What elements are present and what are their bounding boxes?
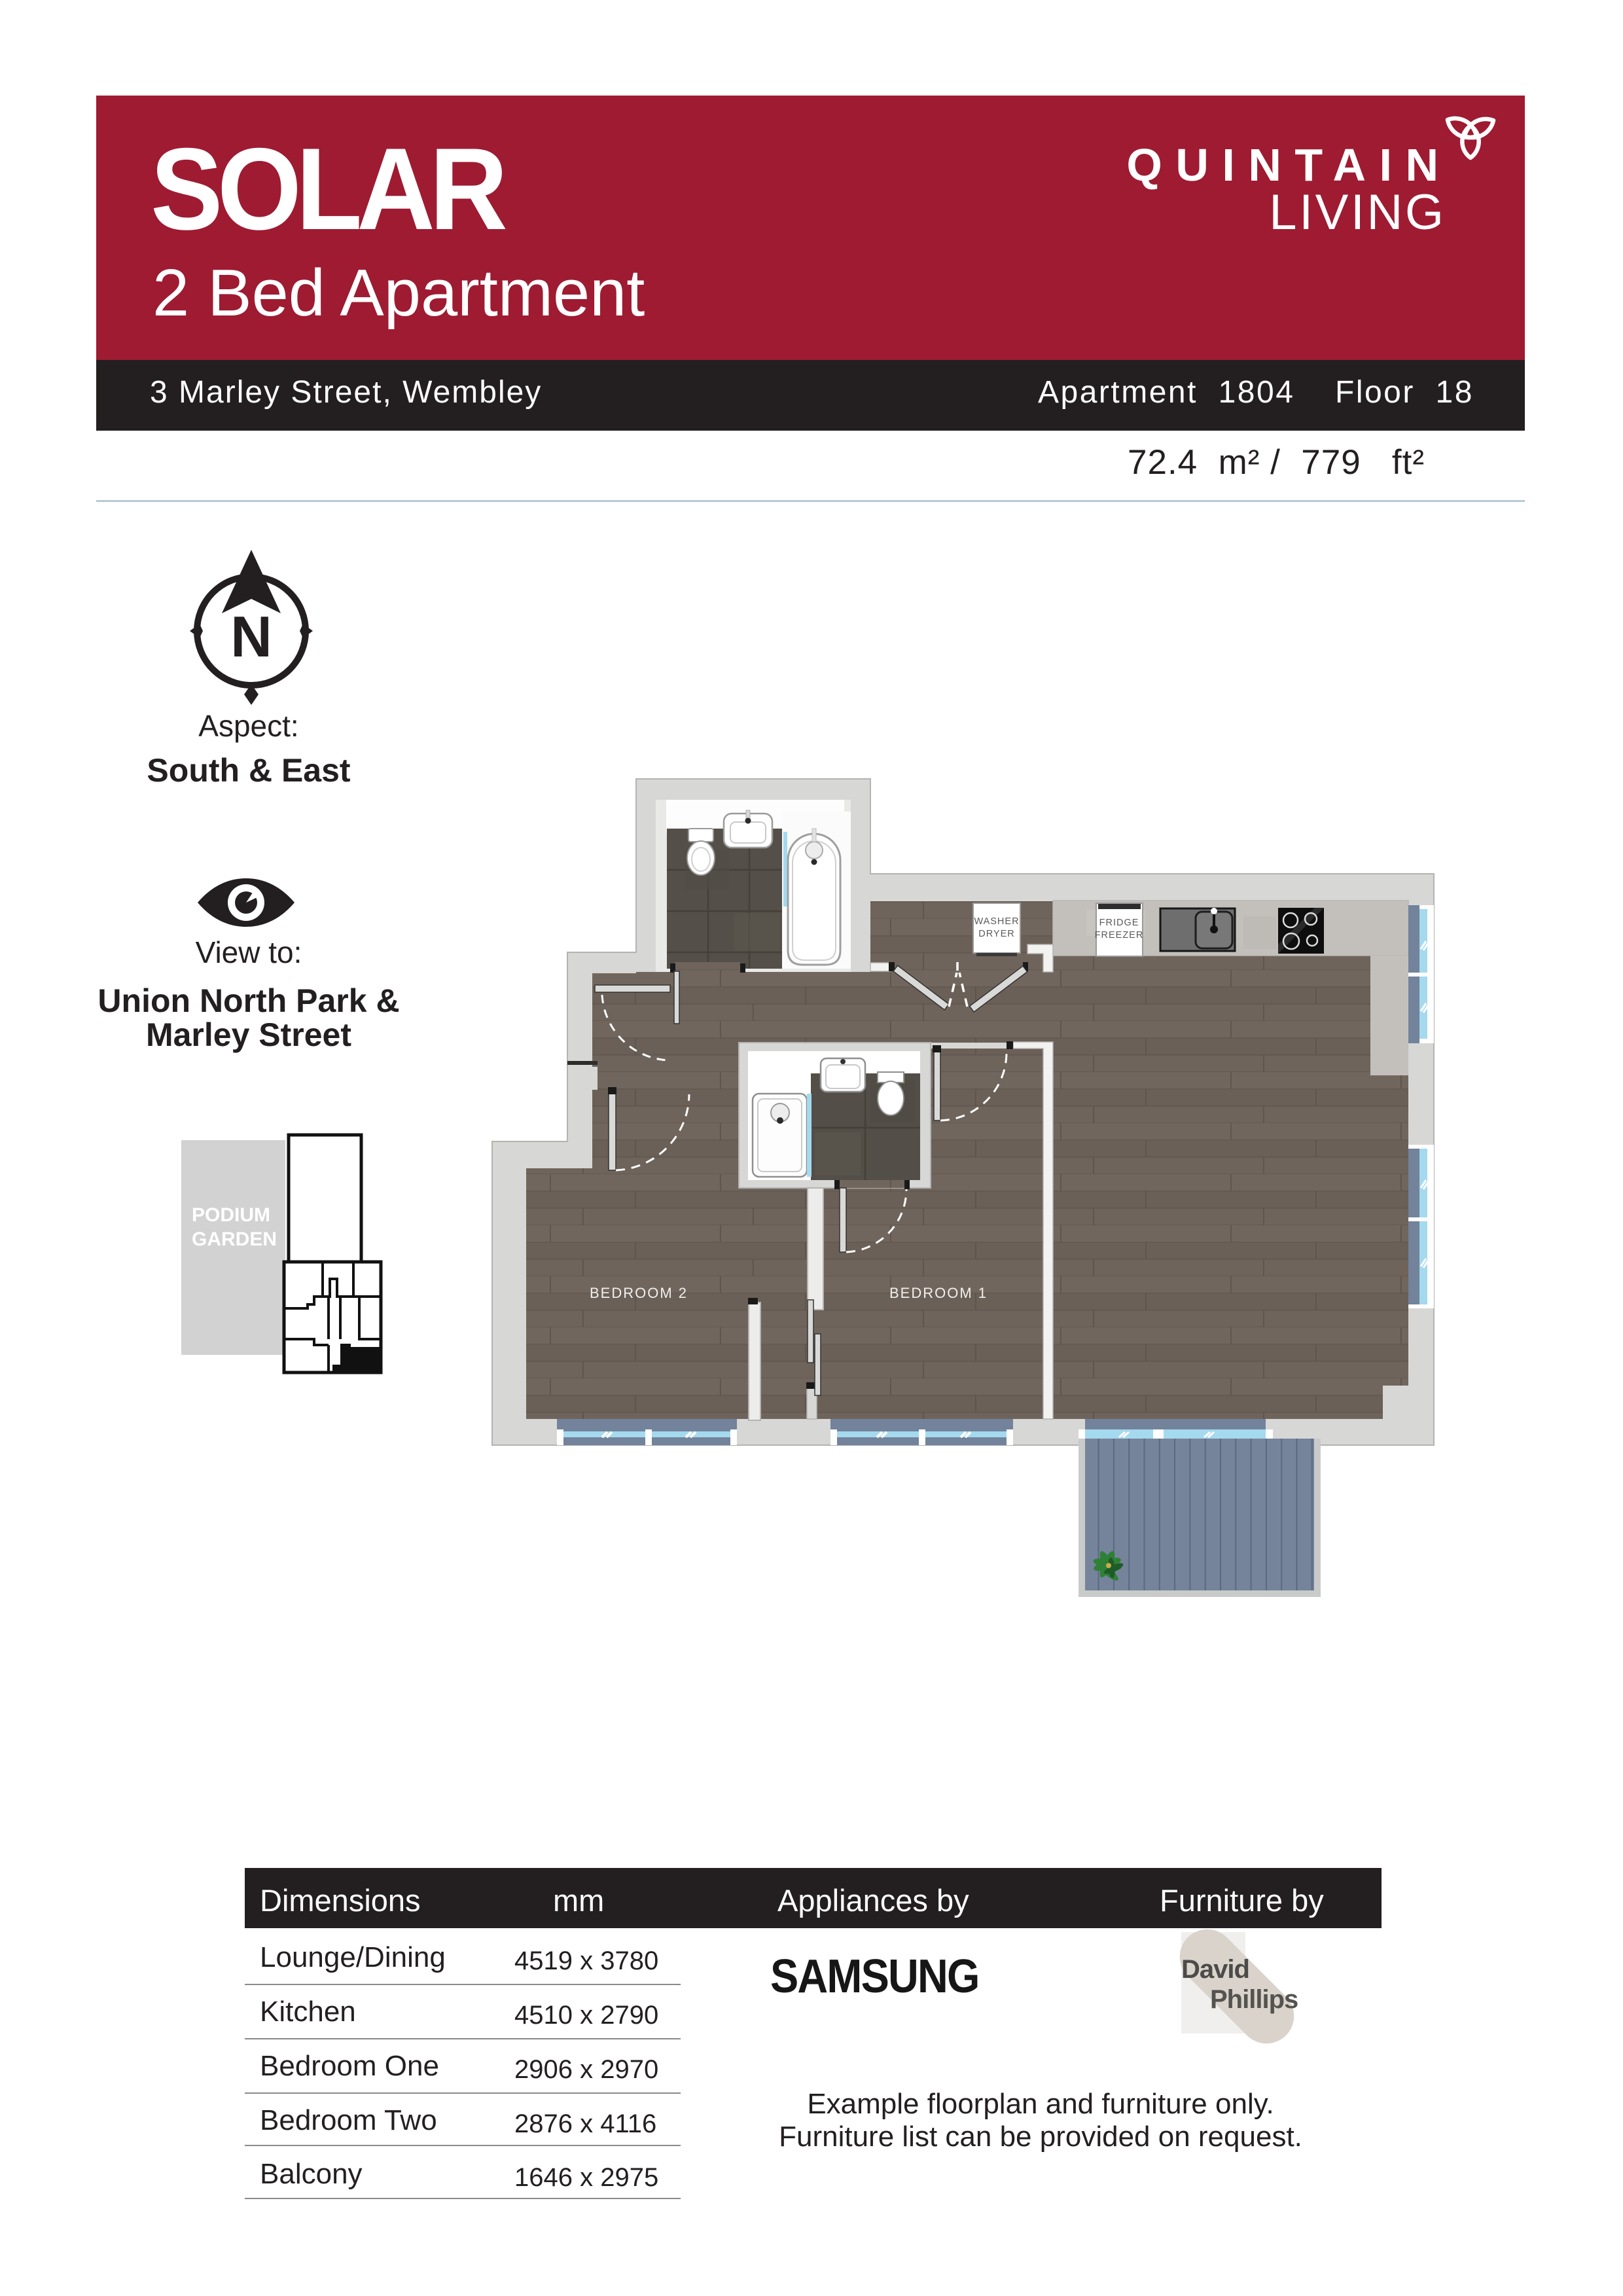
svg-text:FRIDGE: FRIDGE <box>1099 918 1139 928</box>
svg-text:WASHER: WASHER <box>974 916 1019 927</box>
svg-text:BEDROOM 2: BEDROOM 2 <box>590 1285 688 1301</box>
svg-text:BEDROOM 1: BEDROOM 1 <box>889 1285 988 1301</box>
svg-text:DRYER: DRYER <box>978 929 1015 939</box>
svg-text:FREEZER: FREEZER <box>1095 930 1144 941</box>
svg-text:N: N <box>230 604 272 669</box>
